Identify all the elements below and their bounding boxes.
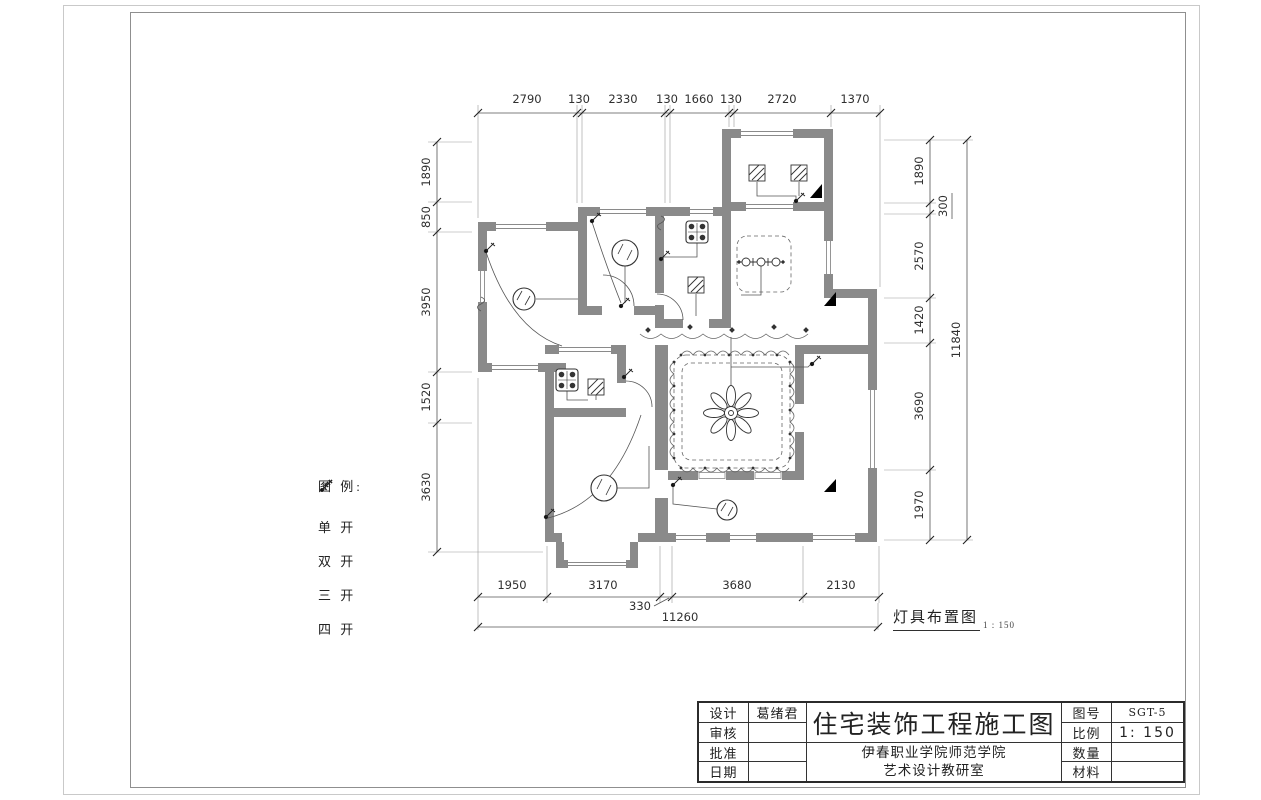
legend-item-label: 三 开 bbox=[318, 585, 376, 604]
legend: 图 例: 单 开 双 开 三 开 四 开 bbox=[318, 476, 384, 645]
title-block-label: 比例 bbox=[1062, 723, 1112, 743]
quantity-value bbox=[1112, 743, 1183, 762]
dining-track-light bbox=[737, 258, 785, 266]
legend-item: 四 开 bbox=[318, 611, 384, 645]
ceiling-lamp bbox=[612, 240, 638, 266]
dim-text: 850 bbox=[419, 206, 433, 228]
dim-text-right: 1890 300 2570 1420 3690 1970 11840 bbox=[912, 156, 963, 519]
material-value bbox=[1112, 762, 1183, 781]
title-block: 设计 葛绪君 审核 批准 日期 住宅装饰工程施工图 伊春职业学院师范学院 艺术设… bbox=[697, 701, 1185, 783]
approver-name bbox=[749, 743, 807, 762]
dim-text: 2790 bbox=[512, 92, 541, 106]
drawing-sheet: 2790 130 2330 130 1660 130 2720 1370 189… bbox=[0, 0, 1261, 800]
designer-name: 葛绪君 bbox=[749, 703, 807, 723]
grille-light bbox=[686, 221, 708, 243]
legend-item: 三 开 bbox=[318, 577, 384, 611]
dim-text: 3170 bbox=[588, 578, 617, 592]
dim-text: 1970 bbox=[912, 490, 926, 519]
dim-text: 300 bbox=[936, 195, 950, 217]
dim-text: 1660 bbox=[684, 92, 713, 106]
dim-text: 11840 bbox=[949, 322, 963, 359]
downlight-hatched bbox=[791, 165, 807, 181]
dim-text: 130 bbox=[656, 92, 678, 106]
downlight-hatched bbox=[688, 277, 704, 293]
title-block-label: 数量 bbox=[1062, 743, 1112, 762]
organization: 伊春职业学院师范学院 艺术设计教研室 bbox=[807, 743, 1062, 781]
dimension-lines: 2790 130 2330 130 1660 130 2720 1370 189… bbox=[419, 92, 973, 631]
dim-text: 1520 bbox=[419, 382, 433, 411]
dim-text: 3630 bbox=[419, 472, 433, 501]
legend-item: 双 开 bbox=[318, 543, 384, 577]
dim-text: 2130 bbox=[826, 578, 855, 592]
title-block-label: 图号 bbox=[1062, 703, 1112, 723]
legend-item-label: 单 开 bbox=[318, 517, 376, 536]
dim-text: 3690 bbox=[912, 391, 926, 420]
dim-text-left: 1890 850 3950 1520 3630 bbox=[419, 157, 433, 501]
dim-text: 1420 bbox=[912, 305, 926, 334]
dim-text: 11260 bbox=[662, 610, 699, 624]
dim-text: 2720 bbox=[767, 92, 796, 106]
dim-text: 3950 bbox=[419, 287, 433, 316]
dim-text: 2570 bbox=[912, 241, 926, 270]
dim-text: 1890 bbox=[419, 157, 433, 186]
dim-text: 2330 bbox=[608, 92, 637, 106]
dim-text: 3680 bbox=[722, 578, 751, 592]
scale-value: 1: 150 bbox=[1112, 723, 1183, 743]
floor-plan-canvas: 2790 130 2330 130 1660 130 2720 1370 189… bbox=[0, 0, 1261, 800]
dim-text: 1890 bbox=[912, 156, 926, 185]
dim-text-top: 2790 130 2330 130 1660 130 2720 1370 bbox=[512, 92, 869, 106]
grille-light bbox=[556, 369, 578, 391]
legend-item-label: 双 开 bbox=[318, 551, 376, 570]
title-block-label: 审核 bbox=[699, 723, 749, 743]
project-title: 住宅装饰工程施工图 bbox=[807, 703, 1062, 743]
title-block-label: 设计 bbox=[699, 703, 749, 723]
legend-item: 单 开 bbox=[318, 509, 384, 543]
dim-text: 130 bbox=[568, 92, 590, 106]
ceiling-lamp bbox=[591, 475, 617, 501]
drawing-number: SGT-5 bbox=[1112, 703, 1183, 723]
wall-switch bbox=[484, 193, 821, 519]
drawing-label-text: 灯具布置图 bbox=[893, 606, 980, 631]
title-block-label: 批准 bbox=[699, 743, 749, 762]
legend-item-label: 四 开 bbox=[318, 619, 376, 638]
ceiling-lamp bbox=[717, 500, 737, 520]
organization-line1: 伊春职业学院师范学院 bbox=[862, 744, 1007, 762]
title-block-label: 材料 bbox=[1062, 762, 1112, 781]
drawing-label: 灯具布置图1 : 150 bbox=[893, 606, 1015, 631]
dim-text: 330 bbox=[629, 599, 651, 613]
dim-text: 1370 bbox=[840, 92, 869, 106]
ceiling-lamp bbox=[513, 288, 535, 310]
dim-text: 130 bbox=[720, 92, 742, 106]
chandelier bbox=[704, 386, 759, 441]
light-fixtures bbox=[484, 165, 821, 520]
date-value bbox=[749, 762, 807, 781]
reviewer-name bbox=[749, 723, 807, 743]
downlight-hatched bbox=[749, 165, 765, 181]
downlight-hatched bbox=[588, 379, 604, 395]
dim-text: 1950 bbox=[497, 578, 526, 592]
dim-text-bottom: 1950 3170 3680 2130 330 11260 bbox=[497, 578, 855, 624]
organization-line2: 艺术设计教研室 bbox=[883, 762, 985, 780]
drawing-label-scale: 1 : 150 bbox=[983, 620, 1015, 630]
title-block-label: 日期 bbox=[699, 762, 749, 781]
